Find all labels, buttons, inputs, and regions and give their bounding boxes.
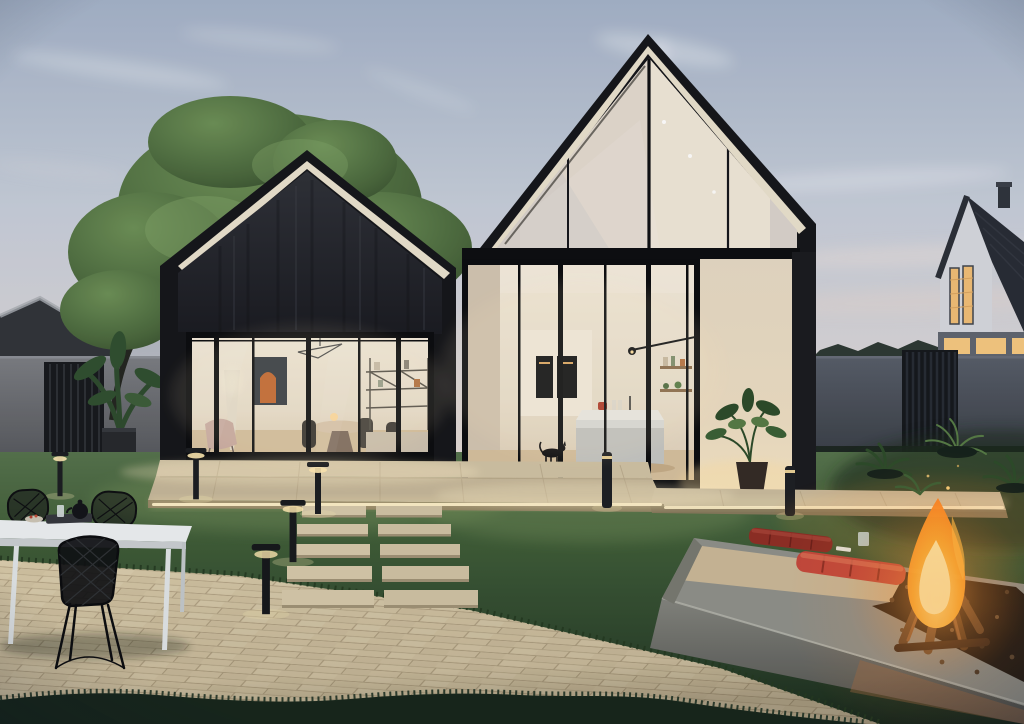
backyard-dusk-photo: [0, 0, 1024, 724]
vignette: [0, 0, 1024, 724]
scene-canvas: [0, 0, 1024, 724]
atmosphere: [0, 0, 1024, 724]
